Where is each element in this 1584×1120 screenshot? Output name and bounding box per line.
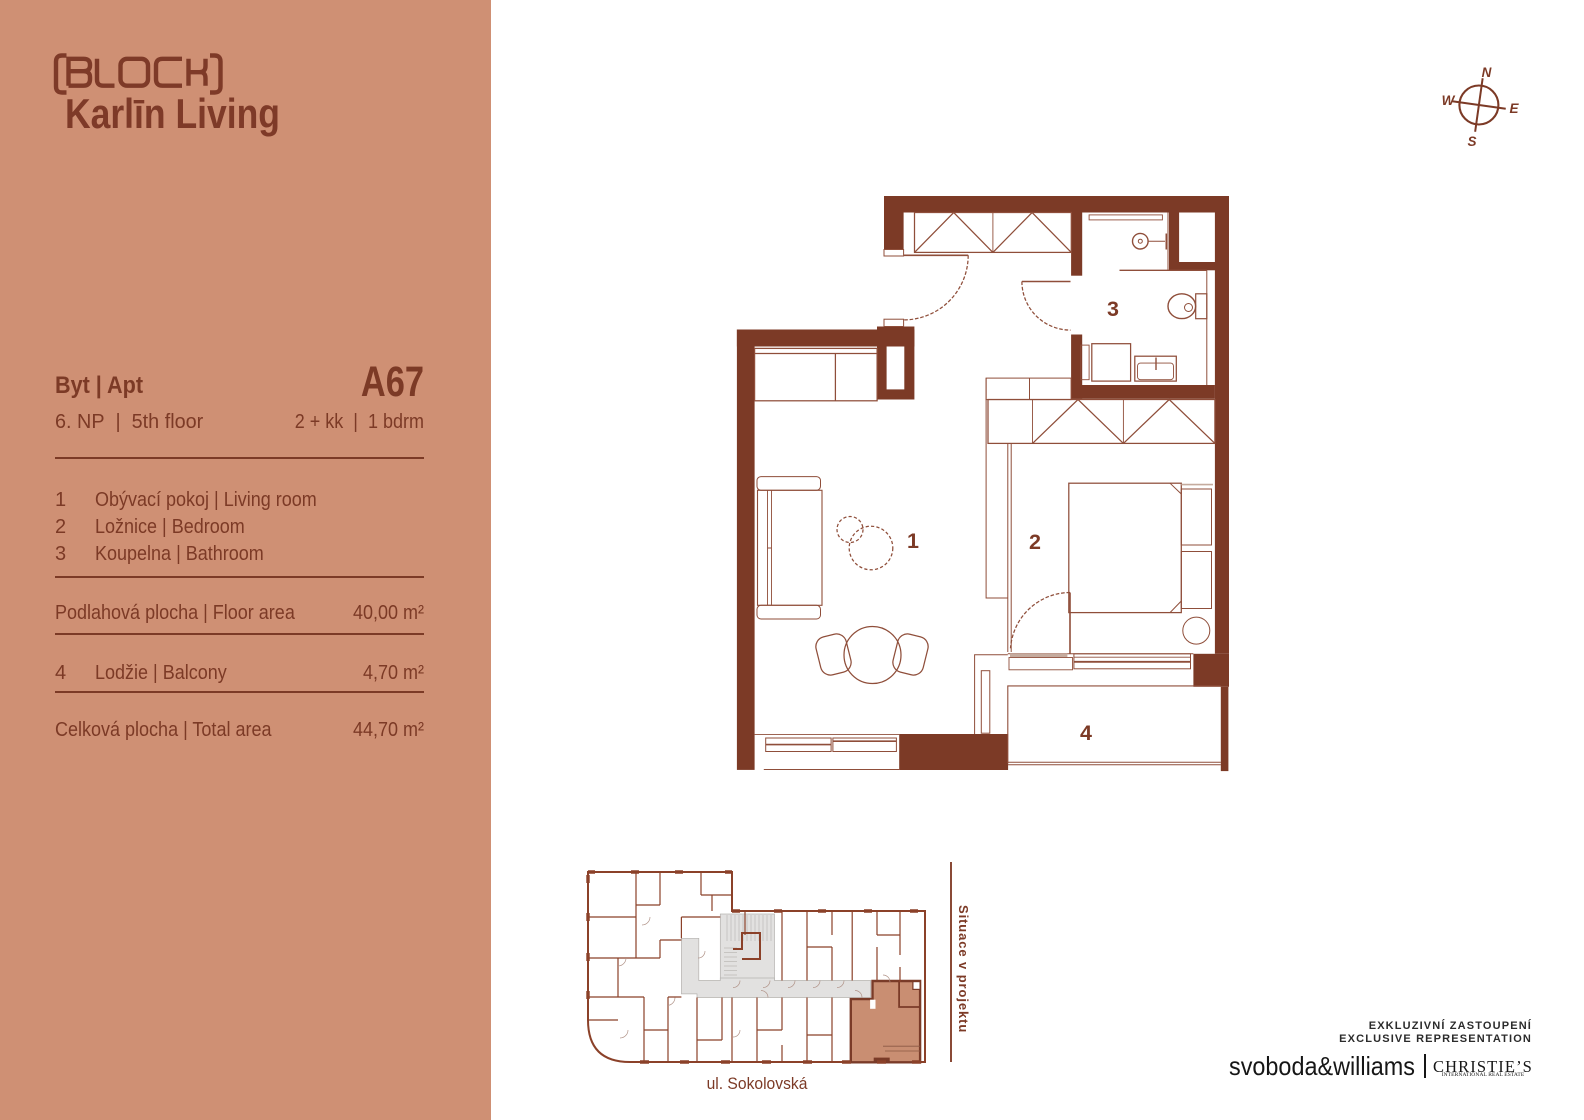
svg-text:3: 3 bbox=[1107, 297, 1119, 321]
svg-text:1: 1 bbox=[907, 529, 919, 553]
svg-text:4: 4 bbox=[1080, 721, 1092, 745]
svg-text:2: 2 bbox=[1029, 530, 1041, 554]
